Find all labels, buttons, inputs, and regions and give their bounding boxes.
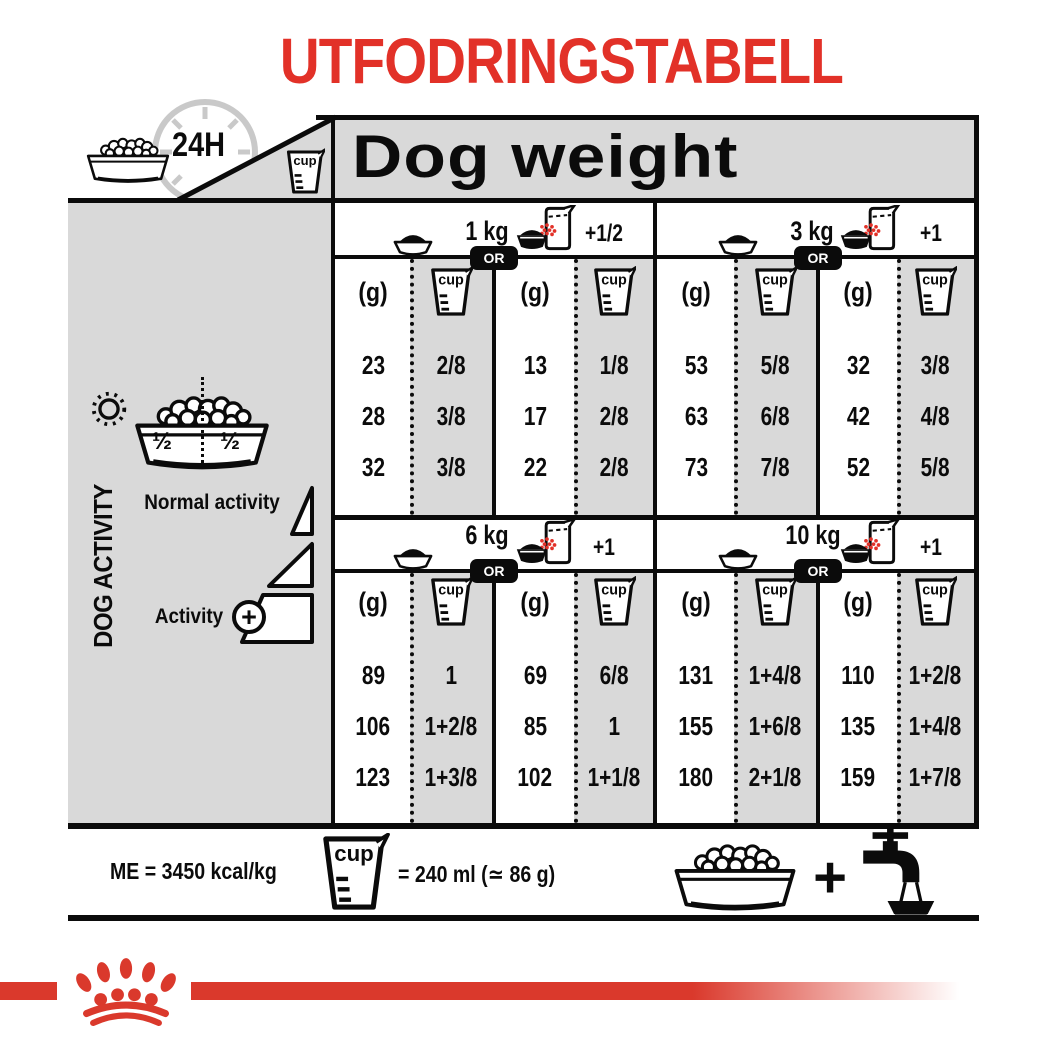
or-badge: OR: [794, 559, 842, 583]
measuring-cup-icon: [913, 266, 957, 318]
cell: 1/8: [600, 350, 629, 381]
cup-values: 1/8 2/8 2/8: [576, 340, 652, 493]
grams-header: (g): [504, 277, 565, 308]
cell: 69: [523, 660, 546, 691]
food-pack-bowl-icon: [837, 205, 905, 257]
dog-weight-title: Dog weight: [352, 122, 739, 191]
plus-icon: +: [808, 844, 852, 911]
measuring-cup-icon: [753, 576, 797, 628]
me-kcal-label: ME = 3450 kcal/kg: [110, 858, 277, 885]
cup-values: 1 1+2/8 1+3/8: [413, 650, 489, 803]
or-badge: OR: [470, 559, 518, 583]
grams-values: 53 63 73: [660, 340, 732, 493]
cell: 32: [846, 350, 869, 381]
grams-values: 32 42 52: [822, 340, 894, 493]
pack-extra-label: +1: [585, 534, 623, 562]
grams-values: 110 135 159: [822, 650, 894, 803]
weight-label: 3 kg: [780, 216, 844, 247]
cell: 106: [356, 711, 391, 742]
cell: 17: [523, 401, 546, 432]
plus-circle-icon: +: [232, 600, 266, 634]
measuring-cup-icon: [429, 266, 473, 318]
dog-bowl-icon: [716, 543, 760, 572]
grams-header: (g): [827, 587, 888, 618]
border: [331, 117, 335, 829]
cell: 63: [684, 401, 707, 432]
grams-header: (g): [342, 277, 403, 308]
grams-values: 69 85 102: [499, 650, 571, 803]
cell: 1: [608, 711, 620, 742]
cup-values: 5/8 6/8 7/8: [737, 340, 813, 493]
cell: 73: [684, 452, 707, 483]
or-label: OR: [808, 250, 829, 266]
border: [816, 259, 820, 515]
cell: 6/8: [761, 401, 790, 432]
or-badge: OR: [794, 246, 842, 270]
border: [68, 915, 979, 921]
cell: 1+2/8: [909, 660, 962, 691]
red-stripe-right: [191, 982, 975, 1000]
cell: 5/8: [761, 350, 790, 381]
or-label: OR: [808, 563, 829, 579]
cell: 6/8: [600, 660, 629, 691]
measuring-cup-icon: [592, 576, 636, 628]
cell: 110: [841, 660, 875, 691]
measuring-cup-icon: [913, 576, 957, 628]
border: [974, 117, 979, 829]
grams-header: (g): [827, 277, 888, 308]
measuring-cup-icon: [316, 833, 392, 913]
feeding-table-page: { "colors": {"red": "#e23128", "panel_gr…: [0, 0, 1049, 1049]
measuring-cup-icon: [429, 576, 473, 628]
dog-bowl-icon: [391, 229, 435, 258]
grams-header: (g): [504, 587, 565, 618]
cell: 3/8: [437, 401, 466, 432]
cell: 28: [361, 401, 384, 432]
cup-values: 1+2/8 1+4/8 1+7/8: [897, 650, 973, 803]
grams-values: 131 155 180: [660, 650, 732, 803]
cell: 5/8: [921, 452, 950, 483]
border: [316, 115, 979, 120]
food-pack-bowl-icon: [513, 519, 581, 571]
cell: 2/8: [600, 452, 629, 483]
normal-activity-label: Normal activity: [136, 491, 289, 515]
red-stripe-left: [0, 982, 57, 1000]
food-pack-bowl-icon: [837, 519, 905, 571]
measuring-cup-icon: [285, 148, 325, 196]
cell: 159: [841, 762, 876, 793]
cell: 1+2/8: [425, 711, 478, 742]
or-badge: OR: [470, 246, 518, 270]
grams-values: 89 106 123: [337, 650, 409, 803]
cell: 22: [523, 452, 546, 483]
grams-header: (g): [665, 277, 726, 308]
cell: 85: [523, 711, 546, 742]
cell: 32: [361, 452, 384, 483]
dog-bowl-icon: [391, 543, 435, 572]
half-portion-right: ½: [220, 428, 240, 456]
or-label: OR: [484, 563, 505, 579]
page-title: UTFODRINGSTABELL: [280, 24, 770, 98]
cell: 23: [361, 350, 384, 381]
cell: 4/8: [921, 401, 950, 432]
cell: 1+7/8: [909, 762, 962, 793]
moon-icon: [283, 389, 309, 422]
cup-equivalence-label: = 240 ml (≃ 86 g): [398, 861, 555, 888]
cell: 89: [361, 660, 384, 691]
grams-header: (g): [342, 587, 403, 618]
cell: 135: [841, 711, 876, 742]
pack-extra-label: +1/2: [578, 220, 629, 248]
border: [68, 823, 979, 829]
sun-icon: [88, 388, 130, 430]
cell: 2/8: [600, 401, 629, 432]
measuring-cup-icon: [592, 266, 636, 318]
measuring-cup-icon: [753, 266, 797, 318]
cell: 1+3/8: [425, 762, 478, 793]
cell: 52: [846, 452, 869, 483]
bowl-kibble-icon: [655, 836, 815, 912]
cup-values: 3/8 4/8 5/8: [897, 340, 973, 493]
bowl-split-dotted-line: [201, 377, 204, 463]
pack-extra-label: +1: [912, 534, 950, 562]
cell: 123: [356, 762, 391, 793]
activity-level-1-icon: [289, 485, 316, 538]
or-label: OR: [484, 250, 505, 266]
weight-label: 6 kg: [455, 520, 519, 551]
activity-plus-label: Activity: [148, 605, 231, 629]
cell: 2+1/8: [749, 762, 802, 793]
bowl-kibble-icon: [84, 122, 172, 194]
cell: 1+6/8: [749, 711, 802, 742]
cell: 3/8: [437, 452, 466, 483]
border: [816, 573, 820, 823]
border: [492, 573, 496, 823]
grams-header: (g): [665, 587, 726, 618]
plus-glyph: +: [241, 604, 257, 631]
cup-values: 1+4/8 1+6/8 2+1/8: [737, 650, 813, 803]
border: [68, 198, 979, 203]
cell: 1+1/8: [588, 762, 641, 793]
cell: 53: [684, 350, 707, 381]
cup-values: 6/8 1 1+1/8: [576, 650, 652, 803]
cell: 7/8: [761, 452, 790, 483]
grams-values: 23 28 32: [337, 340, 409, 493]
activity-level-2-icon: [265, 541, 317, 590]
dog-activity-label: DOG ACTIVITY: [88, 484, 118, 648]
border: [492, 259, 496, 515]
cell: 1+4/8: [909, 711, 962, 742]
cell: 155: [679, 711, 714, 742]
half-portion-left: ½: [152, 428, 172, 456]
cup-values: 2/8 3/8 3/8: [413, 340, 489, 493]
cell: 2/8: [437, 350, 466, 381]
cell: 102: [518, 762, 553, 793]
cell: 13: [523, 350, 546, 381]
weight-label: 1 kg: [455, 216, 519, 247]
cell: 1+4/8: [749, 660, 802, 691]
food-pack-bowl-icon: [513, 205, 581, 257]
royal-canin-crown-logo: [64, 956, 188, 1026]
cell: 180: [679, 762, 714, 793]
cell: 3/8: [921, 350, 950, 381]
pack-extra-label: +1: [912, 220, 950, 248]
water-tap-icon: [852, 827, 938, 917]
cell: 1: [445, 660, 457, 691]
cell: 42: [846, 401, 869, 432]
cell: 131: [679, 660, 714, 691]
grams-values: 13 17 22: [499, 340, 571, 493]
dog-bowl-icon: [716, 229, 760, 258]
